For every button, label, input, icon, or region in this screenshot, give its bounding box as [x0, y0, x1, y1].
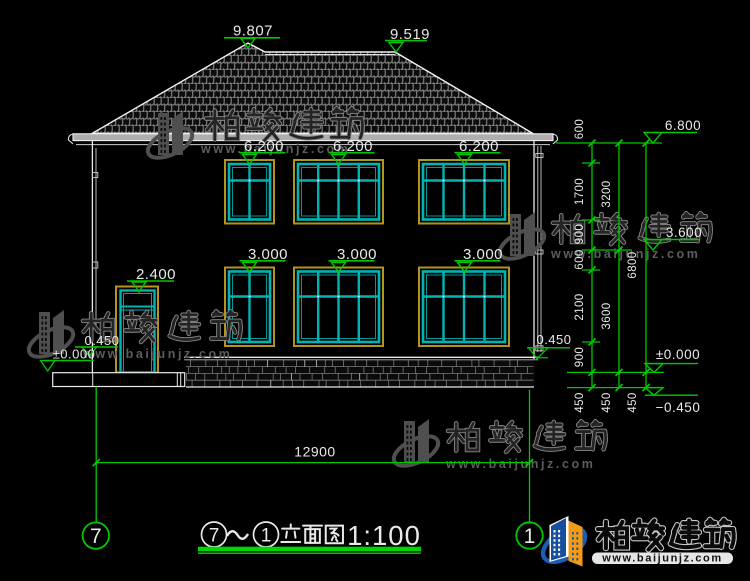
svg-text:3200: 3200: [601, 180, 613, 207]
svg-text:600: 600: [574, 119, 586, 139]
svg-text:3.600: 3.600: [666, 225, 702, 240]
svg-text:www.baijunjz.com: www.baijunjz.com: [445, 457, 595, 471]
svg-text:900: 900: [574, 347, 586, 367]
svg-text:450: 450: [627, 392, 639, 412]
svg-text:450: 450: [601, 392, 613, 412]
svg-text:www.baijunjz.com: www.baijunjz.com: [550, 247, 700, 261]
svg-text:www.baijunjz.com: www.baijunjz.com: [82, 347, 232, 361]
svg-text:7: 7: [90, 525, 102, 548]
svg-text:2100: 2100: [574, 293, 586, 320]
svg-text:6.800: 6.800: [665, 118, 701, 133]
svg-text:6800: 6800: [627, 251, 639, 278]
svg-text:7: 7: [209, 526, 220, 547]
svg-text:±0.000: ±0.000: [53, 347, 96, 362]
svg-text:900: 900: [574, 224, 586, 244]
svg-text:1700: 1700: [574, 178, 586, 205]
svg-text:−0.450: −0.450: [656, 400, 701, 415]
svg-text:±0.000: ±0.000: [656, 347, 700, 362]
svg-text:www.baijunjz.com: www.baijunjz.com: [601, 553, 723, 565]
svg-text:0.450: 0.450: [536, 332, 571, 347]
svg-text:3600: 3600: [601, 302, 613, 329]
svg-text:450: 450: [574, 392, 586, 412]
svg-text:600: 600: [574, 249, 586, 269]
svg-text:12900: 12900: [294, 444, 335, 460]
svg-text:1: 1: [261, 526, 272, 547]
svg-text:1:100: 1:100: [347, 520, 421, 551]
svg-text:1: 1: [524, 525, 536, 548]
svg-text:9.807: 9.807: [233, 23, 273, 40]
